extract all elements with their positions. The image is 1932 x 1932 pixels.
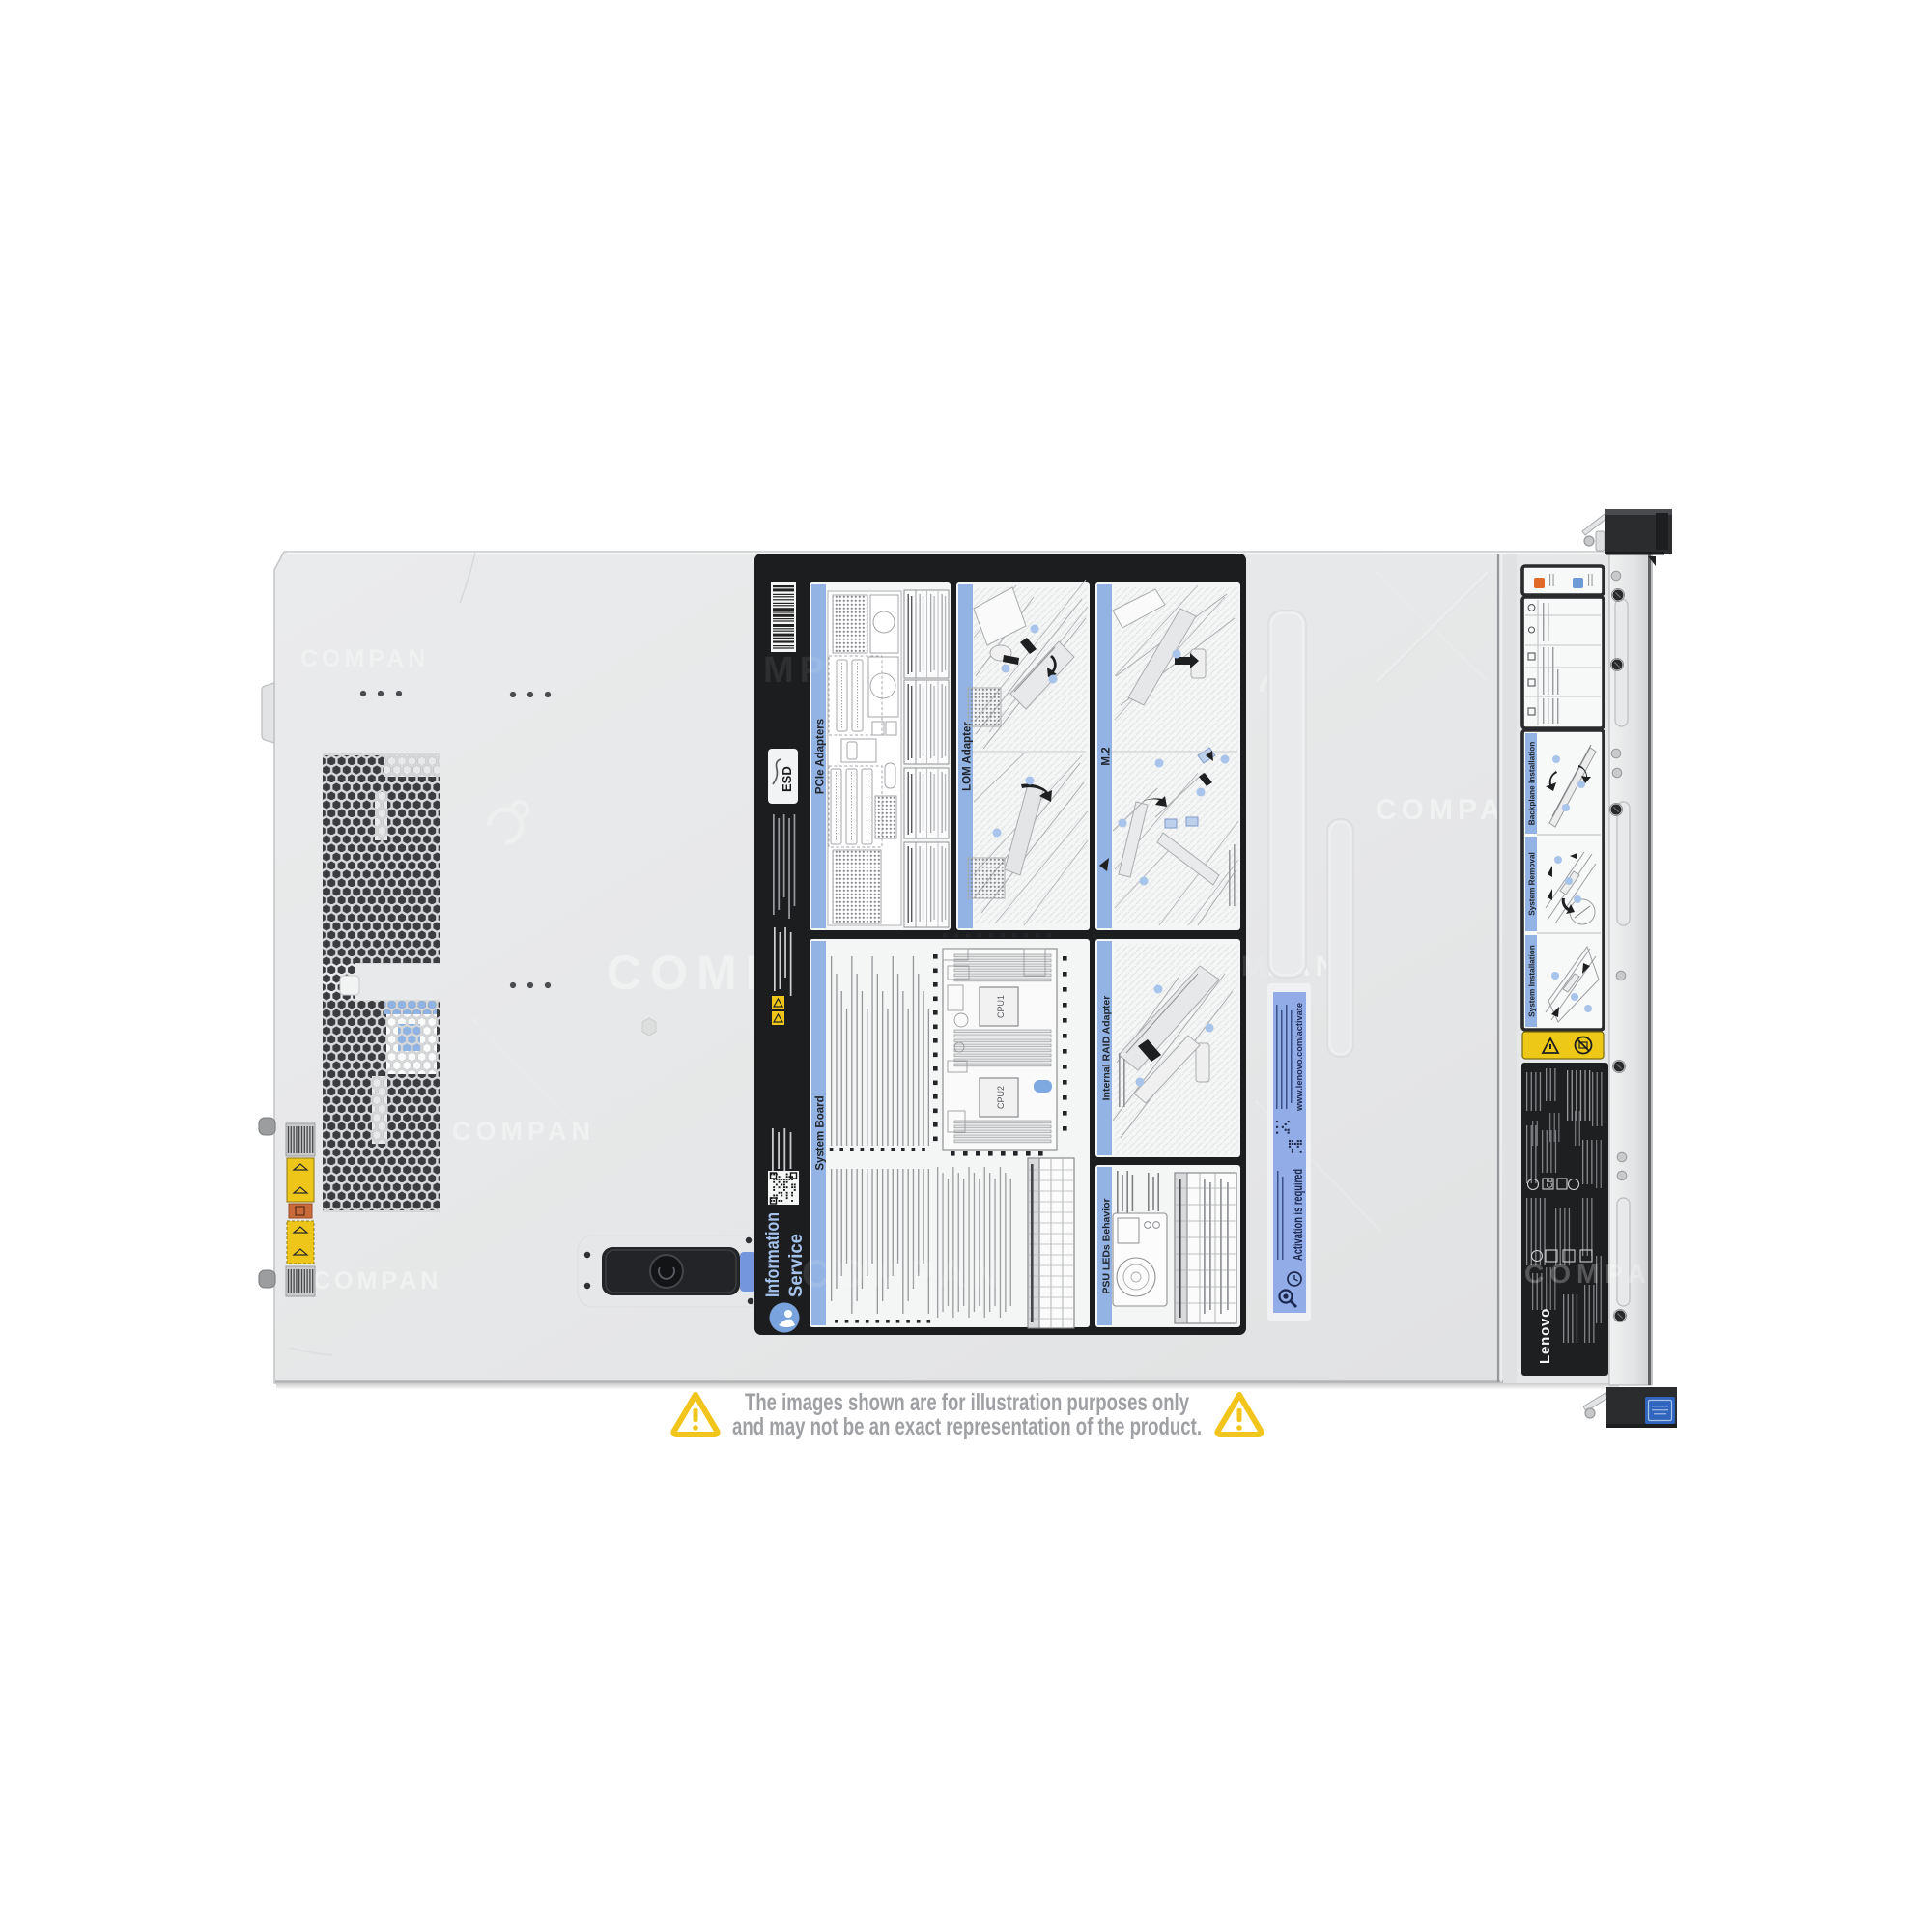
svg-text:and may not be an exact repres: and may not be an exact representation o… <box>732 1413 1202 1440</box>
svg-text:COM: COM <box>1186 951 1271 982</box>
svg-text:Lenovo: Lenovo <box>1537 1308 1553 1364</box>
svg-text:PSU LEDs Behavior: PSU LEDs Behavior <box>1101 1198 1113 1293</box>
svg-text:M.2: M.2 <box>1101 747 1113 765</box>
svg-text:System Board: System Board <box>815 1095 827 1170</box>
svg-text:COMPAN: COMPAN <box>313 1267 441 1294</box>
svg-text:CPU2: CPU2 <box>996 1086 1006 1109</box>
svg-text:PCIe Adapters: PCIe Adapters <box>815 719 827 794</box>
svg-text:COMPAN: COMPAN <box>452 1117 595 1146</box>
svg-text:Activation is required: Activation is required <box>1291 1169 1305 1261</box>
svg-text:Backplane Installation: Backplane Installation <box>1528 742 1537 825</box>
svg-text:The images shown are for illus: The images shown are for illustration pu… <box>745 1389 1189 1416</box>
svg-text:CE: CE <box>1546 1178 1554 1188</box>
svg-text:CPU1: CPU1 <box>996 995 1006 1018</box>
svg-text:www.lenovo.com/activate: www.lenovo.com/activate <box>1294 1003 1305 1112</box>
svg-text:Information: Information <box>763 1212 783 1297</box>
svg-text:System Removal: System Removal <box>1528 852 1537 916</box>
svg-text:COMPAN: COMPAN <box>1524 1259 1677 1289</box>
svg-text:COMPAN: COMPAN <box>300 645 429 672</box>
svg-text:Internal RAID Adapter: Internal RAID Adapter <box>1101 996 1113 1101</box>
svg-text:LOM Adapter: LOM Adapter <box>962 722 974 791</box>
svg-text:MPAN: MPAN <box>763 650 892 691</box>
svg-text:System Installation: System Installation <box>1528 945 1537 1017</box>
svg-text:ESD: ESD <box>780 766 794 792</box>
svg-text:COMPAN: COMPAN <box>802 1253 1006 1295</box>
